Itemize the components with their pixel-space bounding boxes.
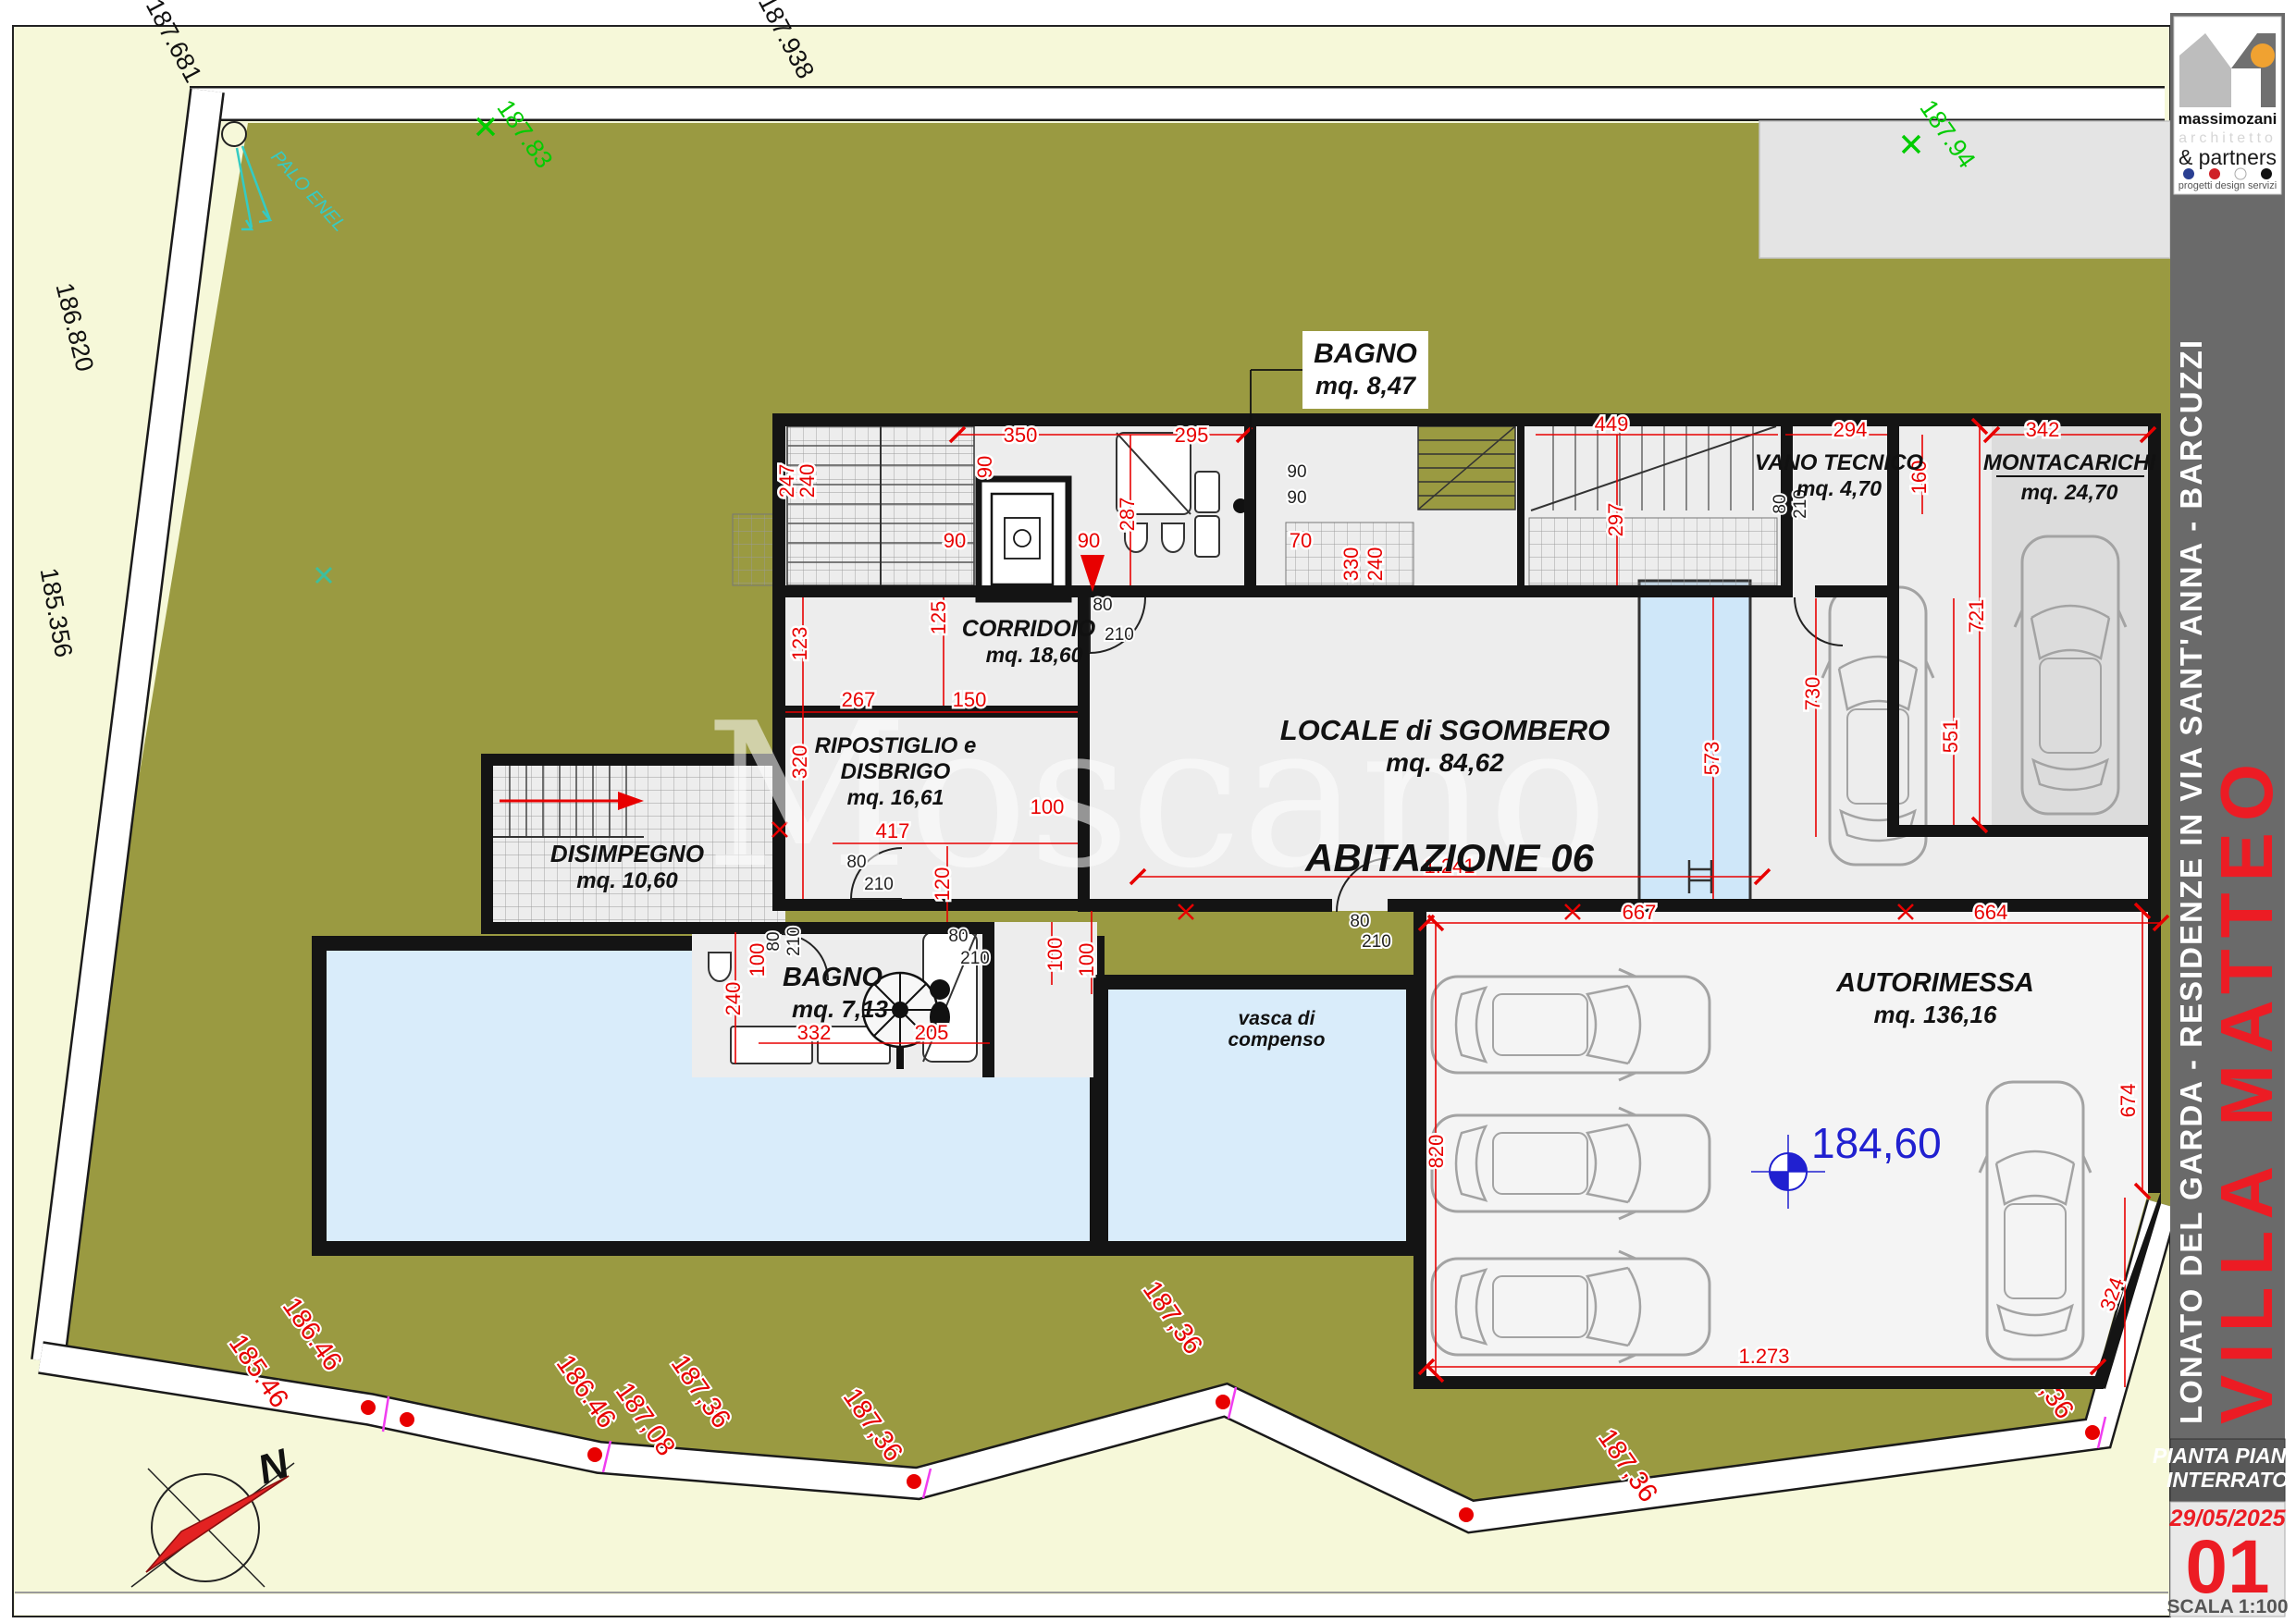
room-label-disimpegno: DISIMPEGNO (550, 840, 704, 867)
drawing-title-2: INTERRATO (2166, 1468, 2289, 1492)
dim-label: 100 (1031, 795, 1065, 818)
dim-label: 820 (1425, 1135, 1448, 1169)
lap-pool-strip (1639, 581, 1750, 902)
dim-label: 240 (1364, 547, 1387, 582)
dim-label: 664 (1974, 901, 2008, 924)
door-label: 80 (1350, 912, 1369, 931)
room-label-corridoio: CORRIDOIO (962, 616, 1096, 642)
logo-name: massimozani (2179, 110, 2277, 128)
room-label-montacarichi: MONTACARICHI (1983, 450, 2157, 475)
room-area-vano-tecnico: mq. 4,70 (1796, 476, 1882, 500)
dim-label: 90 (973, 456, 996, 478)
elevator (979, 479, 1068, 599)
drawing-title-1: PIANTA PIANO (2153, 1444, 2296, 1468)
title-block: PIANTA PIANO INTERRATO 29/05/2025 01 SCA… (2153, 1439, 2296, 1617)
room-area-bagno-top: mq. 8,47 (1315, 372, 1417, 400)
dim-label: 100 (1043, 938, 1067, 972)
dim-label: 721 (1965, 599, 1988, 633)
door-label: 80 (1092, 596, 1112, 615)
room-label-vano-tecnico: VANO TECNICO (1755, 450, 1924, 475)
door-label: 90 (1287, 488, 1306, 508)
dim-label: 240 (796, 464, 819, 498)
dim-label: 449 (1595, 412, 1629, 436)
garage-floor (1426, 911, 2148, 1378)
door-label: 210 (864, 875, 894, 894)
room-area-corridoio: mq. 18,60 (986, 643, 1083, 667)
room-label-locale: LOCALE di SGOMBERO (1280, 714, 1611, 746)
dim-label: 332 (797, 1021, 832, 1044)
person-icon (930, 979, 950, 1000)
dim-label: 297 (1604, 503, 1627, 537)
logo-tagline: progetti design servizi (2179, 180, 2277, 191)
room-area-locale: mq. 84,62 (1386, 748, 1504, 777)
room-area-bagno2: mq. 7,13 (792, 995, 889, 1023)
dim-label: 90 (1078, 529, 1100, 552)
dim-label: 120 (931, 867, 954, 902)
architect-logo: massimozani architetto & partners proget… (2174, 17, 2281, 194)
pool-label-1: vasca di (1239, 1008, 1316, 1029)
door-label: 210 (1362, 932, 1391, 952)
floor-plan-canvas: 187.681 187.938 186.820 185.356 187.83 1… (0, 0, 2296, 1623)
unit-label: ABITAZIONE 06 (1304, 836, 1595, 879)
door-label: 80 (846, 853, 866, 872)
drawing-scale: SCALA 1:100 (2166, 1596, 2288, 1617)
room-label-bagno-top: BAGNO (1314, 338, 1417, 369)
room-label-ripostiglio-2: DISBRIGO (841, 759, 951, 784)
room-area-montacarichi: mq. 24,70 (2021, 480, 2118, 504)
dim-label: 100 (1075, 943, 1098, 977)
dim-label: 1.273 (1738, 1345, 1789, 1368)
stair-external (1418, 426, 1515, 510)
project-address: LONATO DEL GARDA - RESIDENZE IN VIA SANT… (2174, 338, 2208, 1424)
dim-label: 294 (1833, 418, 1868, 441)
dim-label: 667 (1623, 901, 1657, 924)
door-label: 80 (948, 927, 968, 946)
door-label: 80 (1771, 494, 1790, 513)
room-label-autorimessa: AUTORIMESSA (1835, 968, 2034, 998)
sheet-bottom-strip (15, 1594, 2168, 1615)
project-name: VILLA MATTEO (2205, 753, 2288, 1424)
level-value: 184,60 (1811, 1119, 1942, 1167)
dim-label: 330 (1339, 547, 1363, 582)
door-label: 90 (1287, 462, 1306, 482)
sidebar: massimozani architetto & partners proget… (2153, 13, 2296, 1617)
dim-label: 150 (953, 688, 987, 711)
dim-label: 70 (1290, 529, 1312, 552)
dim-label: 320 (788, 745, 811, 780)
door-label: 210 (960, 949, 990, 968)
room-area-autorimessa: mq. 136,16 (1874, 1001, 1998, 1028)
dim-label: 573 (1700, 742, 1723, 776)
door-label: 210 (1105, 625, 1134, 645)
logo-dot-orange (2251, 43, 2275, 68)
room-label-bagno2: BAGNO (783, 963, 883, 992)
door-label: 210 (784, 927, 804, 956)
dim-label: 125 (927, 601, 950, 635)
dim-label: 674 (2117, 1084, 2140, 1118)
dim-label: 350 (1004, 424, 1038, 447)
dim-label: 295 (1175, 424, 1209, 447)
door-label: 80 (764, 931, 784, 951)
dim-label: 90 (944, 529, 966, 552)
stair-main (787, 426, 974, 585)
dim-label: 267 (842, 688, 876, 711)
pool-label-2: compenso (1228, 1029, 1325, 1051)
room-area-disimpegno: mq. 10,60 (576, 868, 678, 893)
drawing-sheet: 187.681 187.938 186.820 185.356 187.83 1… (0, 0, 2296, 1623)
room-label-ripostiglio: RIPOSTIGLIO e (815, 733, 977, 758)
logo-profession: architetto (2179, 130, 2277, 146)
logo-partners: & partners (2179, 145, 2277, 169)
dim-label: 417 (876, 819, 910, 842)
room-area-ripostiglio: mq. 16,61 (847, 785, 944, 809)
dim-label: 205 (915, 1021, 949, 1044)
dim-label: 287 (1116, 498, 1139, 532)
dim-label: 551 (1939, 719, 1962, 754)
dim-label: 730 (1801, 677, 1824, 711)
dim-label: 240 (722, 982, 745, 1016)
dim-label: 123 (788, 627, 811, 661)
dim-label: 342 (2026, 418, 2060, 441)
